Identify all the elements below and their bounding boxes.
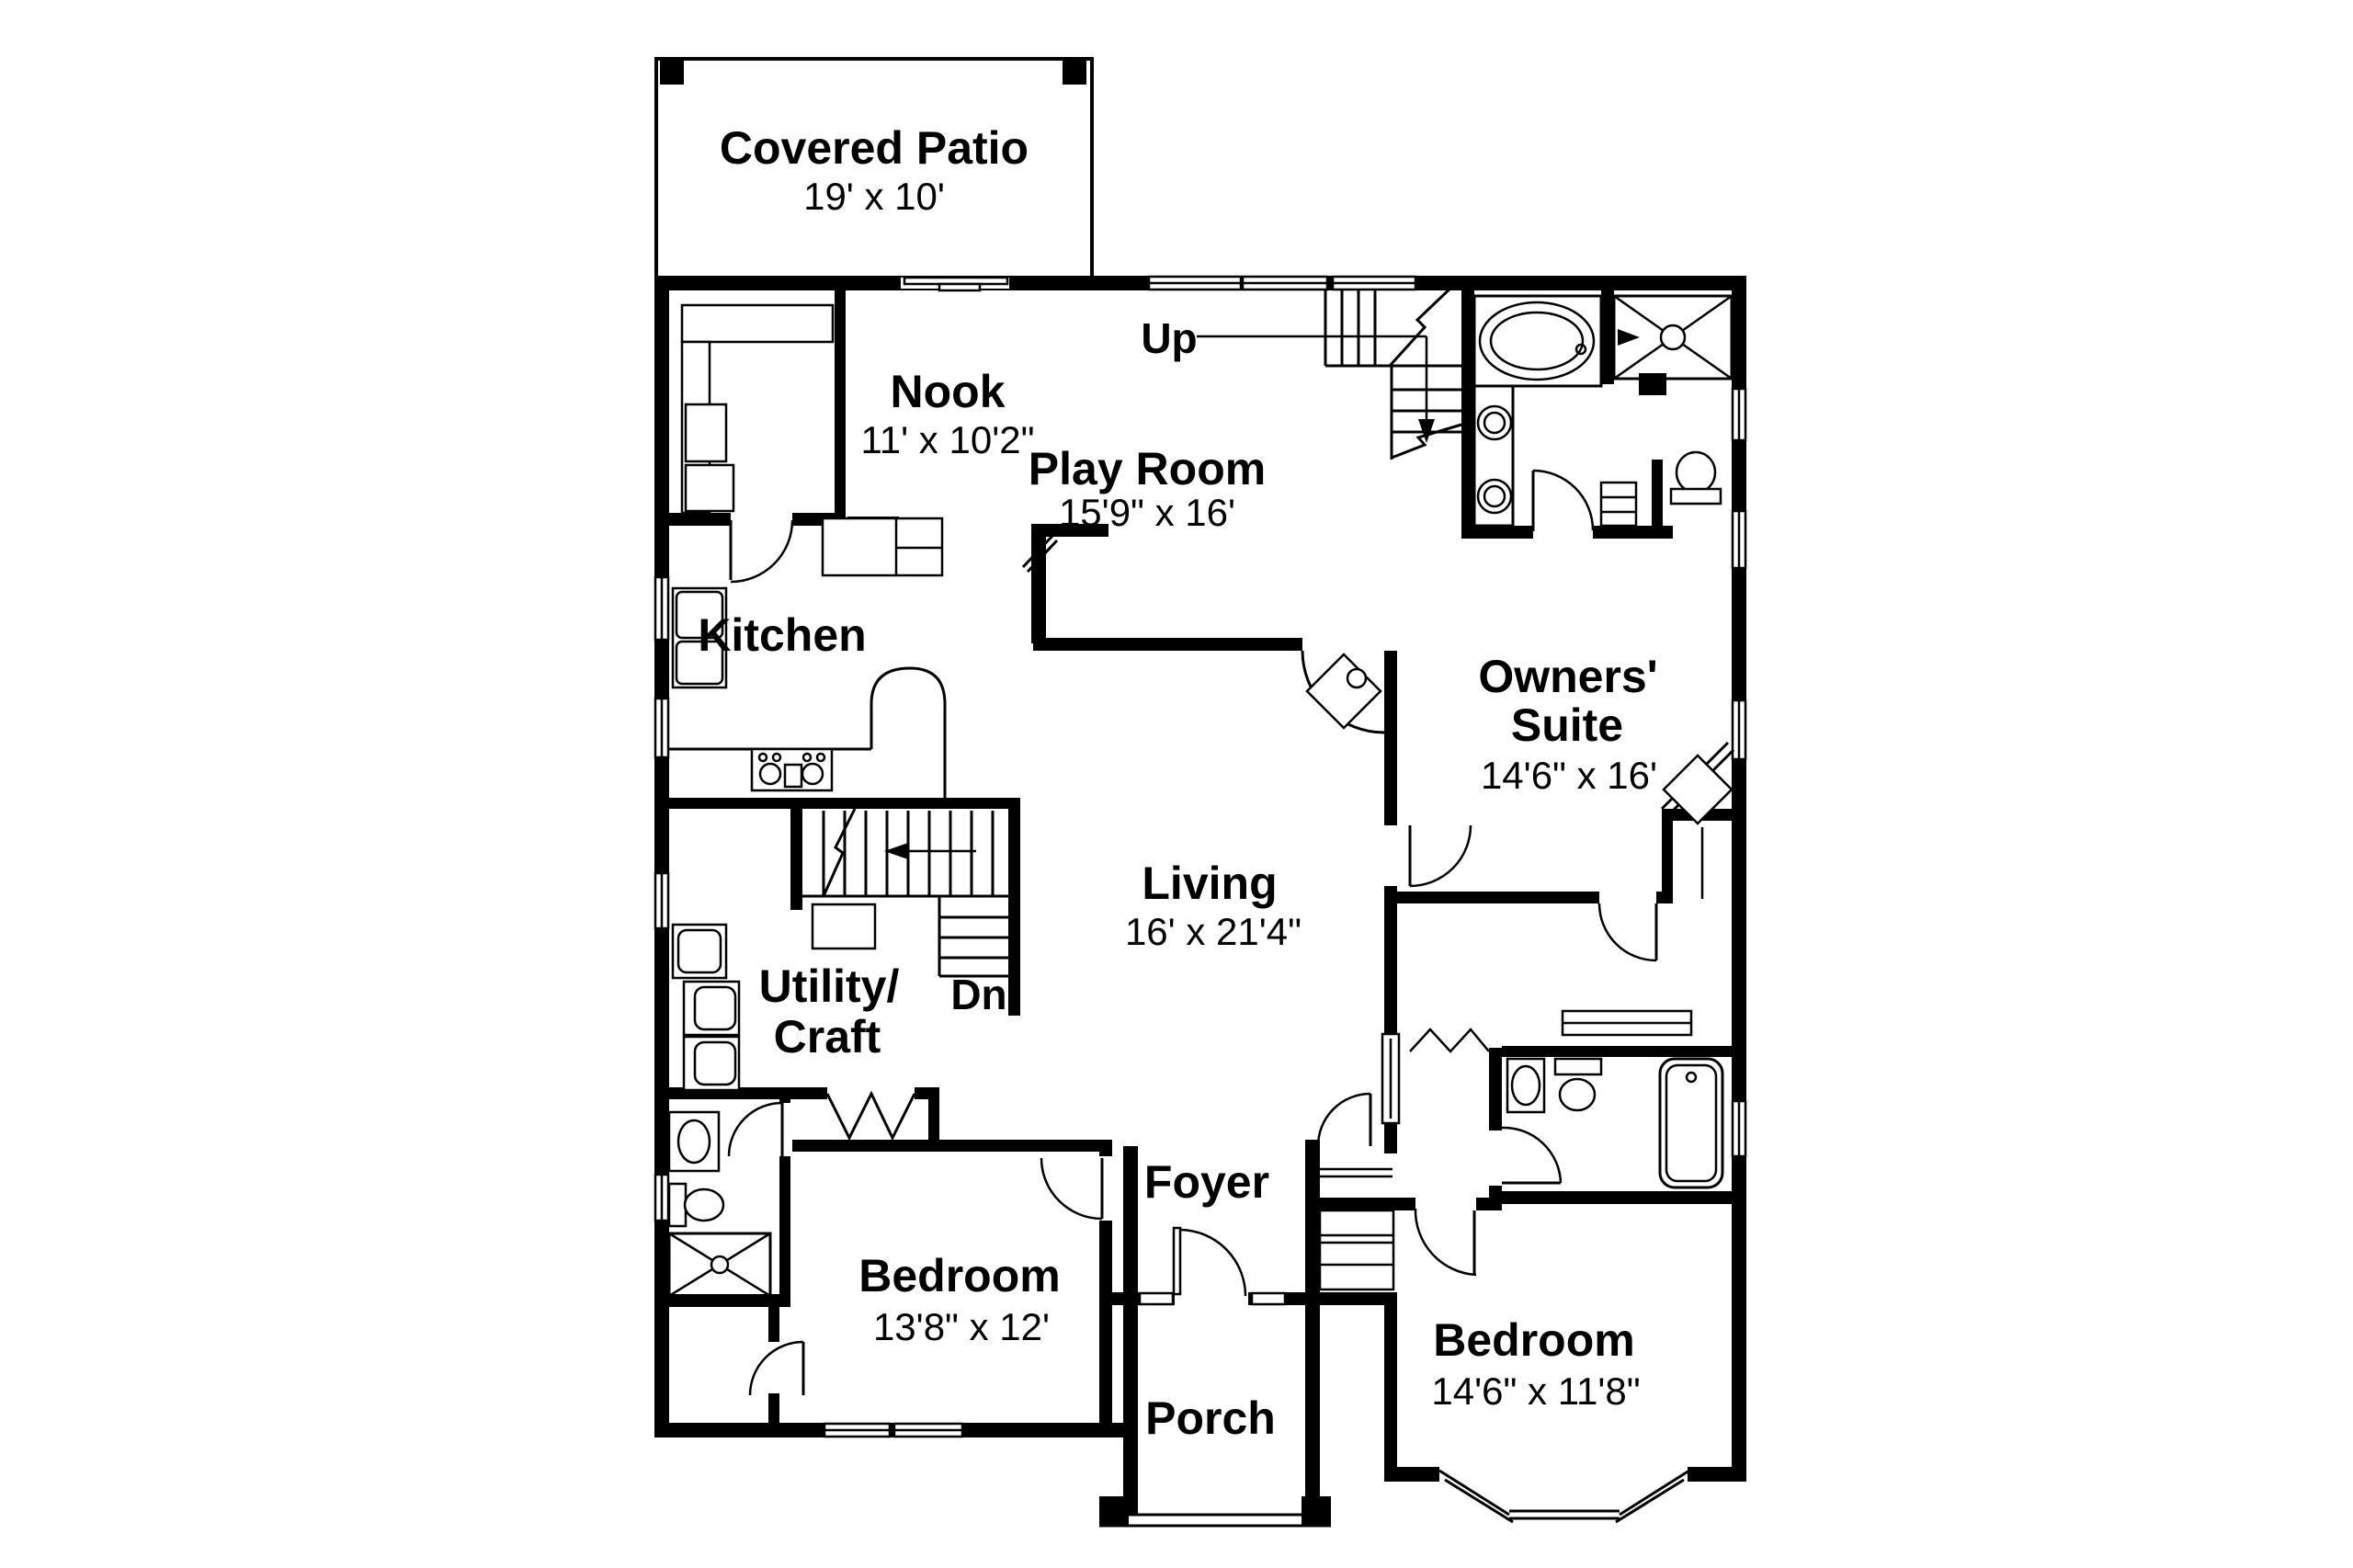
toilet xyxy=(1560,1079,1595,1110)
coat-closet-door xyxy=(1318,1094,1370,1146)
closet-bifold-door xyxy=(1410,1029,1489,1051)
label-living: Living xyxy=(1142,858,1277,909)
shower xyxy=(1614,296,1732,395)
pantry-shelves xyxy=(682,305,833,513)
patio-post-left xyxy=(660,61,684,85)
foyer-closets xyxy=(1320,1169,1393,1290)
bedroom-left-closet-door xyxy=(750,1342,803,1395)
dims-owners-suite: 14'6" x 16' xyxy=(1481,754,1657,797)
bathtub xyxy=(1480,302,1594,380)
label-owners-suite-2: Suite xyxy=(1511,699,1623,751)
floor-plan-drawing: Covered Patio 19' x 10' Nook 11' x 10'2"… xyxy=(0,0,2353,1568)
pocket-door xyxy=(1382,1034,1399,1123)
bath-left xyxy=(669,1112,770,1296)
label-dn: Dn xyxy=(950,971,1006,1018)
understair-shelf xyxy=(813,904,875,949)
label-utility-1: Utility/ xyxy=(759,960,900,1012)
label-utility-2: Craft xyxy=(774,1011,881,1062)
label-nook: Nook xyxy=(891,366,1006,417)
dims-play-room: 15'9" x 16' xyxy=(1059,491,1235,534)
pantry-door xyxy=(731,520,792,582)
label-kitchen: Kitchen xyxy=(698,609,866,661)
bath-right xyxy=(1507,1059,1722,1187)
owners-suite-door xyxy=(1410,825,1471,886)
label-play-room: Play Room xyxy=(1029,443,1266,494)
walk-in-closet xyxy=(1410,827,1702,1051)
toilet-tank xyxy=(669,1184,686,1226)
bath-left-door xyxy=(729,1103,782,1156)
shower-left xyxy=(669,1233,770,1296)
label-owners-suite-1: Owners' xyxy=(1478,651,1657,702)
stairs-down xyxy=(802,809,1008,976)
bath-cabinet xyxy=(1601,483,1636,526)
dims-covered-patio: 19' x 10' xyxy=(803,175,945,218)
porch-pillar-right xyxy=(1302,1496,1331,1526)
shower-door-arrow xyxy=(1618,329,1640,346)
master-bath-door xyxy=(1533,471,1593,531)
sink xyxy=(678,1120,710,1163)
stairs-up xyxy=(1197,283,1461,460)
label-bedroom-right: Bedroom xyxy=(1433,1314,1634,1366)
vanity-double-sinks xyxy=(1474,386,1513,526)
label-bedroom-left: Bedroom xyxy=(858,1250,1060,1301)
patio-post-right xyxy=(1063,61,1086,85)
dims-living: 16' x 21'4" xyxy=(1125,910,1302,953)
bedroom-left-door xyxy=(1041,1158,1102,1219)
bath-right-door xyxy=(1502,1128,1561,1183)
corner-sink xyxy=(1302,651,1384,733)
stove xyxy=(752,749,832,790)
toilet-tank xyxy=(1555,1059,1601,1074)
closet-door xyxy=(1599,903,1656,960)
porch-pillar-left xyxy=(1099,1496,1129,1526)
bifold-closet-door xyxy=(827,1094,915,1138)
label-porch: Porch xyxy=(1145,1392,1276,1444)
dims-bedroom-right: 14'6" x 11'8" xyxy=(1431,1369,1640,1413)
patio-slider-door xyxy=(901,278,1009,290)
floor-plan-page: Covered Patio 19' x 10' Nook 11' x 10'2"… xyxy=(0,0,2353,1568)
dims-bedroom-left: 13'8" x 12' xyxy=(873,1305,1050,1348)
dims-nook: 11' x 10'2" xyxy=(861,418,1035,461)
master-toilet xyxy=(1671,452,1721,504)
label-foyer: Foyer xyxy=(1144,1156,1269,1208)
bay-window xyxy=(1439,1471,1689,1522)
sink xyxy=(1512,1066,1540,1105)
toilet xyxy=(685,1189,723,1221)
label-up: Up xyxy=(1141,314,1197,362)
bedroom-right-door xyxy=(1415,1209,1476,1275)
label-covered-patio: Covered Patio xyxy=(720,122,1029,174)
bathtub-right xyxy=(1660,1059,1722,1187)
front-door xyxy=(1174,1228,1245,1296)
